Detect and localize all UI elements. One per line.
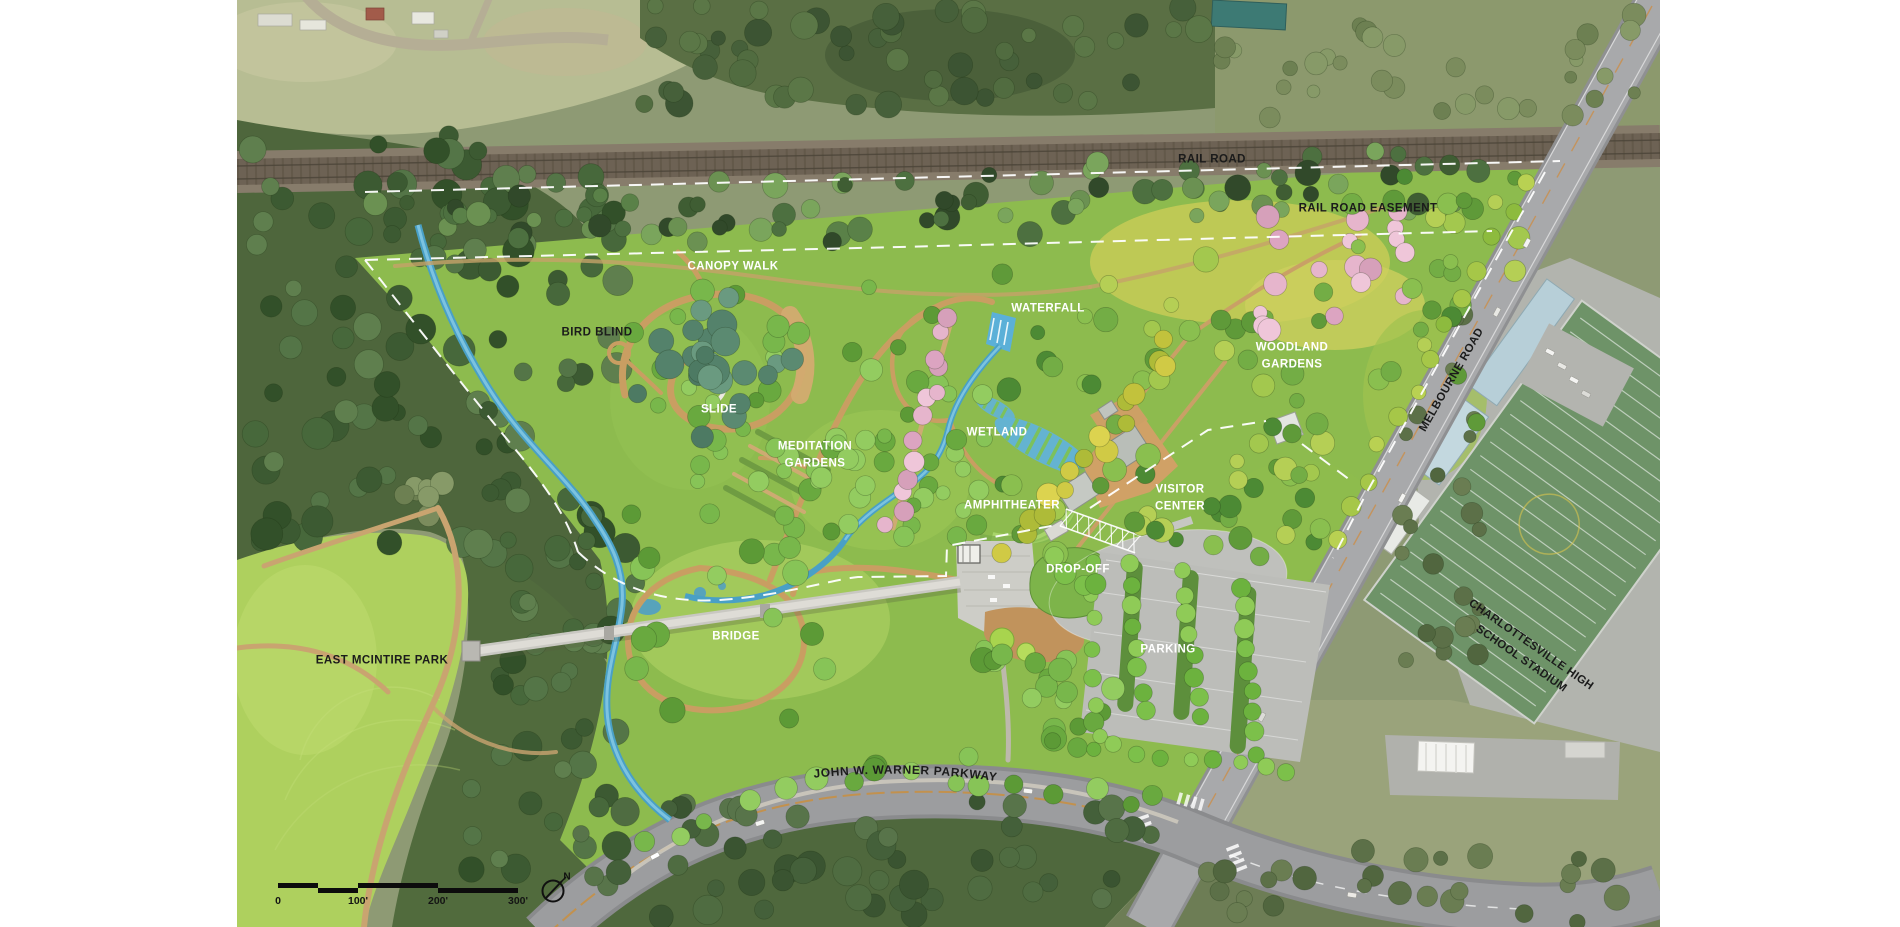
context-building-teal-roof: [1211, 0, 1286, 30]
scale-tick-300: 300': [508, 895, 528, 907]
parking-lot: [1080, 552, 1330, 762]
north-label: N: [563, 872, 570, 883]
scale-tick-100: 100': [348, 895, 368, 907]
page-margin-right: [1660, 0, 1900, 927]
gateway-building: [958, 545, 980, 563]
page-margin-left: [0, 0, 237, 927]
scale-tick-0: 0: [275, 895, 281, 907]
context-warehouse: [1385, 735, 1620, 800]
scale-tick-200: 200': [428, 895, 448, 907]
site-plan-page: JOHN W. WARNER PARKWAY RAIL ROAD RAIL RO…: [0, 0, 1900, 927]
site-plan-map: JOHN W. WARNER PARKWAY: [0, 0, 1900, 927]
